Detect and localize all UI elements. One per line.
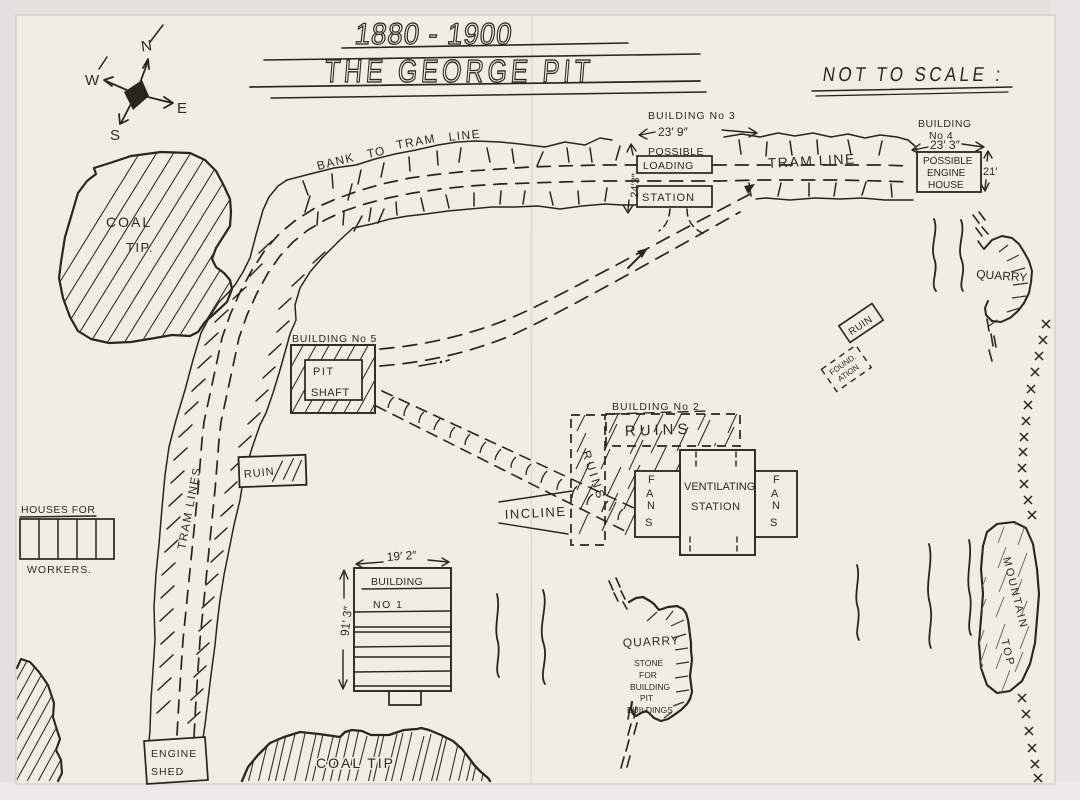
svg-text:NOT TO SCALE :: NOT TO SCALE :: [821, 63, 1005, 86]
svg-text:F: F: [773, 474, 780, 486]
svg-text:LOADING: LOADING: [643, 160, 694, 172]
svg-text:21′: 21′: [983, 166, 997, 178]
svg-text:HOUSE: HOUSE: [928, 180, 964, 191]
svg-text:N: N: [647, 500, 655, 512]
svg-text:TIP.: TIP.: [126, 240, 154, 255]
svg-text:PIT: PIT: [640, 693, 653, 703]
svg-text:BUILDING: BUILDING: [630, 682, 670, 692]
svg-text:HOUSES FOR: HOUSES FOR: [21, 504, 95, 516]
svg-text:POSSIBLE: POSSIBLE: [923, 156, 973, 167]
svg-text:BUILDING: BUILDING: [918, 118, 972, 130]
svg-text:E: E: [177, 100, 187, 117]
svg-text:S: S: [645, 517, 652, 529]
svg-text:A: A: [646, 488, 654, 500]
svg-text:FOR: FOR: [639, 670, 657, 680]
svg-text:19′ 2″: 19′ 2″: [386, 548, 418, 564]
svg-text:F: F: [648, 474, 655, 486]
svg-text:BUILDING No 3: BUILDING No 3: [648, 110, 736, 122]
svg-text:23′ 3″: 23′ 3″: [930, 138, 961, 152]
svg-text:PIT: PIT: [313, 366, 335, 378]
svg-text:STATION: STATION: [642, 192, 695, 204]
svg-text:S: S: [770, 517, 777, 529]
svg-text:W: W: [85, 72, 100, 89]
svg-text:COAL: COAL: [106, 214, 152, 230]
svg-text:STONE: STONE: [634, 658, 663, 668]
svg-text:NO 1: NO 1: [373, 599, 404, 611]
svg-text:SHAFT: SHAFT: [311, 387, 350, 399]
svg-text:23′ 9″: 23′ 9″: [658, 125, 689, 139]
svg-text:STATION: STATION: [691, 501, 741, 513]
svg-text:ENGINE: ENGINE: [151, 748, 197, 760]
svg-text:24′3″: 24′3″: [629, 173, 642, 198]
svg-text:WORKERS.: WORKERS.: [27, 564, 92, 576]
svg-text:RUINS: RUINS: [625, 421, 692, 440]
svg-text:COAL TIP: COAL TIP: [316, 755, 395, 771]
svg-text:ENGINE: ENGINE: [927, 168, 966, 179]
svg-text:VENTILATING: VENTILATING: [684, 481, 755, 493]
svg-text:SHED: SHED: [151, 766, 184, 778]
svg-text:BUILDING No 5: BUILDING No 5: [292, 333, 377, 345]
svg-text:S: S: [110, 127, 120, 144]
svg-text:BUILDING: BUILDING: [371, 576, 423, 588]
svg-text:A: A: [771, 488, 779, 500]
svg-text:N: N: [772, 500, 780, 512]
svg-text:BUILDINGS: BUILDINGS: [627, 705, 673, 715]
svg-text:QUARRY: QUARRY: [622, 633, 680, 650]
